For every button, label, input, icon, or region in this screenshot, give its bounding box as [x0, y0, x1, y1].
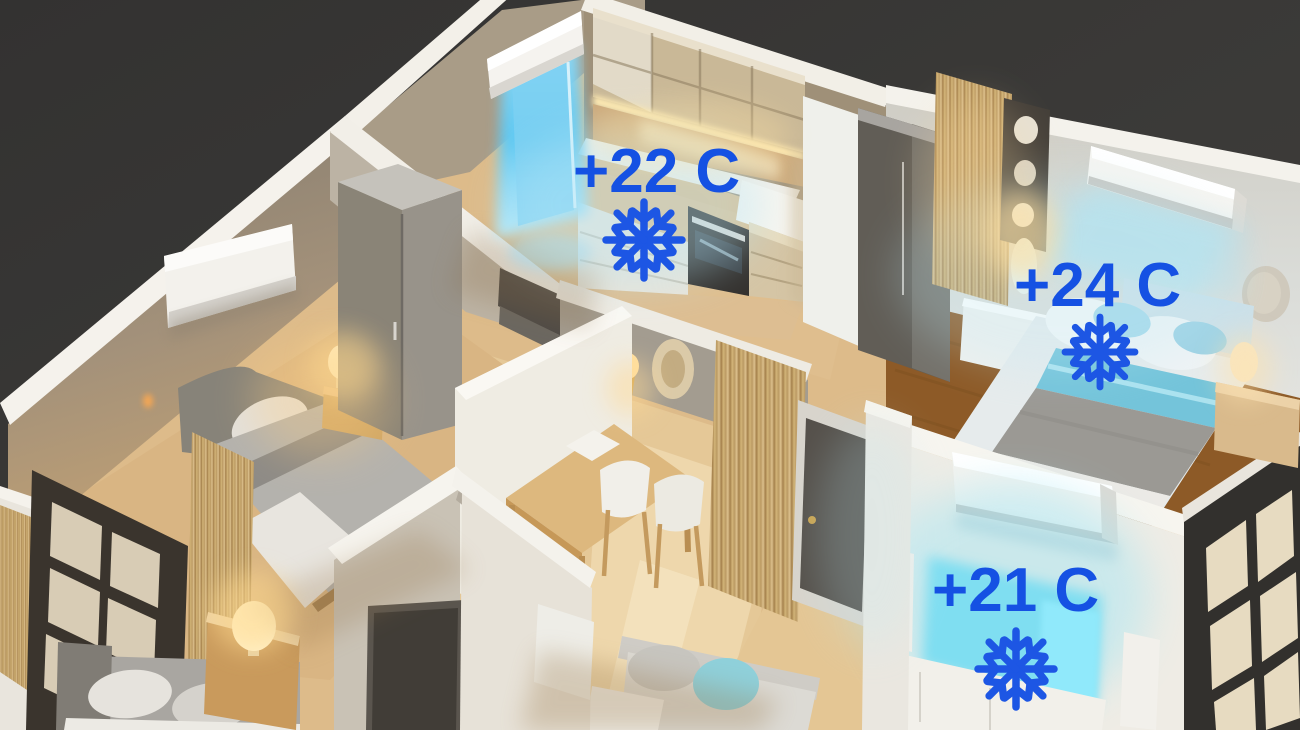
- svg-text:+24 C: +24 C: [1014, 251, 1181, 320]
- svg-text:+22 C: +22 C: [573, 137, 740, 206]
- svg-text:+21 C: +21 C: [932, 556, 1099, 625]
